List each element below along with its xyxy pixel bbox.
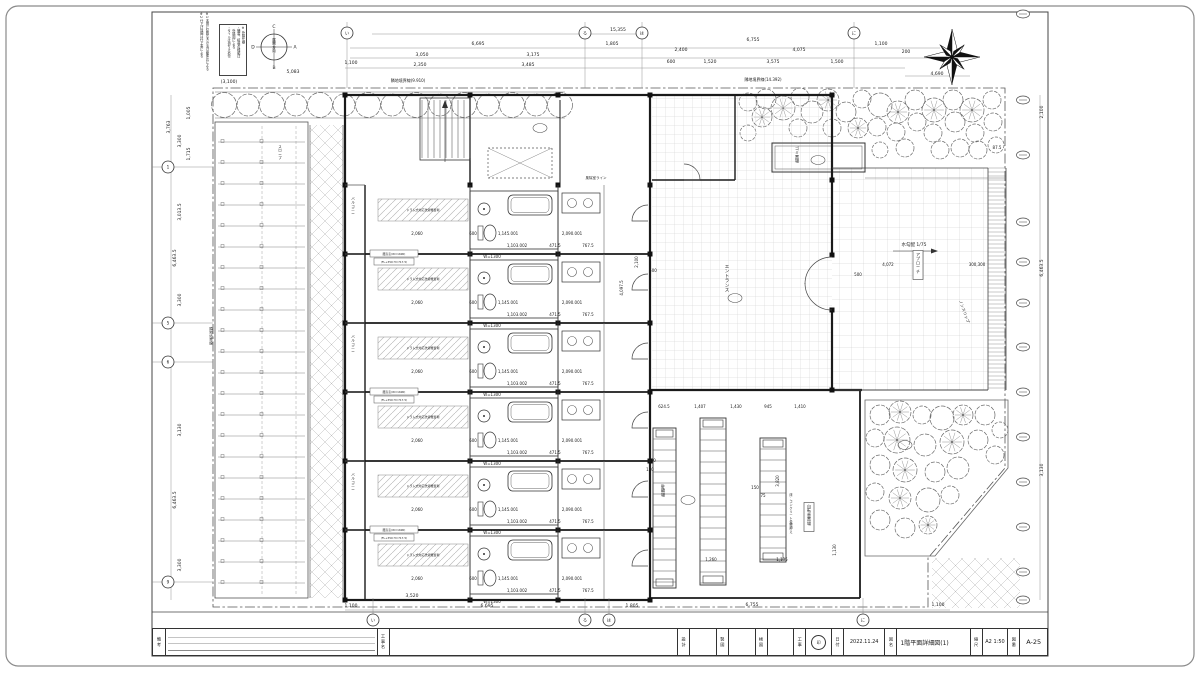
tree-center-dot (927, 524, 929, 526)
toilet-tank (478, 433, 483, 447)
burner (568, 199, 577, 208)
tree-icon (951, 139, 969, 157)
unit-dim-label: 471.5 (549, 243, 561, 248)
tree-center-dot (899, 411, 901, 413)
dim-label: 3,300 (177, 293, 183, 306)
unit-entry-door-arc (632, 274, 648, 290)
tree-icon (872, 142, 888, 158)
tree-icon (925, 462, 945, 482)
unit-dim-label: 2,060 (411, 369, 423, 374)
dwg-line (897, 470, 905, 476)
tree-icon (975, 405, 995, 425)
dim-label: 3,300 (177, 134, 183, 147)
dim-label: 3,300 (177, 558, 183, 571)
unit-dim-label: 767.5 (582, 243, 594, 248)
tree-icon (931, 141, 949, 159)
corner-paving (932, 558, 1020, 608)
unit-dim-label: 1,103.002 (507, 588, 528, 593)
toilet (484, 501, 496, 517)
dim-label: 2,400 (675, 47, 688, 53)
entrance-tile-floor (652, 95, 832, 390)
tree-icon (870, 510, 890, 530)
site-label: バルコニー (351, 197, 355, 216)
bathtub-inner (511, 267, 549, 282)
washbasin-drain (483, 553, 485, 555)
dwg-line (949, 433, 952, 442)
tree-icon (404, 93, 429, 118)
dim-label: 6,463.5 (172, 249, 178, 266)
unit-dim-label: 600 (469, 231, 477, 236)
bath-module (470, 191, 558, 249)
site-label: エントランス (725, 264, 730, 294)
parking-strip (215, 122, 308, 598)
dwg-line (897, 430, 900, 440)
dim-label: 624.5 (658, 404, 670, 409)
unit-dim-label: 2,090.001 (562, 576, 583, 581)
washbasin-drain (483, 484, 485, 486)
dim-label: 1,715 (186, 147, 192, 160)
site-label: スロープ (278, 144, 282, 160)
tree-center-dot (896, 439, 898, 441)
stair-direction-arrow (442, 100, 448, 108)
dwg-line (897, 403, 900, 412)
tree-icon (868, 118, 886, 136)
burner (568, 268, 577, 277)
washbasin-drain (483, 277, 485, 279)
dim-label: (3,100) (221, 79, 238, 85)
dwg-line (900, 498, 903, 507)
tree-icon (870, 455, 890, 475)
design-value (689, 629, 716, 655)
draft-label: 製図 (716, 629, 728, 655)
bathtub-inner (511, 405, 549, 420)
bathtub-inner (511, 543, 549, 558)
site-label: 自転車置場 (807, 503, 811, 526)
tree-icon (983, 91, 1001, 109)
unit-dim-label: 600 (469, 369, 477, 374)
toilet-tank (478, 571, 483, 585)
dwg-line (900, 412, 903, 421)
dim-label: 1,135 (776, 557, 788, 562)
bike-rack (760, 438, 786, 562)
date-value: 2022.11.24 (843, 629, 885, 655)
unit-dim-label: 1,103.002 (507, 519, 528, 524)
dwg-line (949, 442, 952, 451)
tree-center-dot (904, 469, 906, 471)
tree-icon (947, 457, 969, 479)
site-label: バルコニー (351, 335, 355, 354)
dwg-line (956, 415, 963, 420)
sheet-no-value: A-25 (1019, 629, 1047, 655)
bathtub (508, 195, 552, 215)
tree-icon (916, 488, 940, 512)
direction-key-bottom: B (272, 65, 275, 71)
unit-dim-label: 767.5 (582, 519, 594, 524)
laundry-label: ドラム式対応洗濯機置場 (407, 414, 440, 419)
dwg-line (905, 464, 913, 470)
tree-icon (887, 123, 905, 141)
dim-label: 3,820 (775, 475, 780, 487)
dwg-line (900, 403, 903, 412)
rack-endcap (703, 576, 723, 583)
column-post (648, 598, 653, 603)
site-label: 駐輪場 (661, 483, 665, 497)
dwg-line (895, 112, 898, 121)
dim-label: 1,100 (345, 603, 358, 609)
unit-entry-door-arc (632, 412, 648, 428)
dim-label: 15,355 (610, 27, 626, 33)
bathtub-inner (511, 198, 549, 213)
dwg-line (952, 442, 955, 451)
dwg-line (960, 415, 963, 423)
dim-label: 150 (751, 485, 759, 490)
dim-label: 200 (902, 49, 911, 55)
washbasin-drain (483, 346, 485, 348)
dwg-line (902, 461, 905, 470)
bathtub (508, 333, 552, 353)
unit-dim-label: 2,090.001 (562, 369, 583, 374)
burner (568, 544, 577, 553)
dwg-line (902, 470, 905, 479)
tree-icon (836, 102, 856, 122)
burner (584, 337, 593, 346)
dwg-line (926, 104, 934, 110)
dim-label: 150 (646, 467, 654, 472)
dim-label: 3,013.5 (177, 203, 183, 220)
plan-tag (533, 124, 547, 133)
dim-label: 6,695 (472, 41, 485, 47)
dwg-line (893, 407, 900, 412)
dim-label: 1,520 (704, 59, 717, 65)
toilet (484, 225, 496, 241)
unit-dim-label: 1,103.002 (507, 312, 528, 317)
dwg-line (898, 103, 901, 112)
tree-icon (943, 90, 963, 110)
dim-label: 3,130 (1039, 463, 1045, 476)
dwg-line (905, 461, 908, 470)
tree-center-dot (857, 127, 859, 129)
dim-label: 1,430 (730, 404, 742, 409)
dwg-line (900, 407, 907, 412)
dwg-line (952, 433, 955, 442)
dwg-line (855, 128, 858, 136)
tree-center-dot (962, 414, 964, 416)
sheet-no-label: 図番 (1007, 629, 1019, 655)
tree-icon (968, 430, 988, 450)
unit-dim-label: 600 (469, 438, 477, 443)
tree-icon (941, 486, 959, 504)
window-tag-label: (FL+350 H=717.5) (381, 536, 407, 540)
remarks-lines (168, 631, 375, 653)
toilet (484, 294, 496, 310)
work-stamp-cell: 印 (805, 629, 831, 655)
grid-bubble-label: 1 (167, 165, 170, 170)
floor-plan-canvas: ドラム式対応洗濯機置場2,0606001,145.0012,090.0011,1… (0, 0, 1200, 673)
tree-center-dot (897, 111, 899, 113)
dim-label: 500 (649, 268, 657, 273)
unit-dim-label: 2,090.001 (562, 231, 583, 236)
bathtub (508, 402, 552, 422)
unit-dim-label: 471.5 (549, 588, 561, 593)
unit-entry-door-arc (632, 481, 648, 497)
tree-icon (896, 139, 914, 157)
margin-notes: ※1 本図に記載なき寸法は躯体芯による ※2 仕上げ詳細は仕上表による (193, 12, 209, 112)
site-label: アプローチ (916, 252, 920, 274)
dwg-line (858, 128, 865, 133)
tree-icon (525, 94, 547, 116)
dwg-line (931, 110, 934, 119)
project-name-label: 工事名 (377, 629, 389, 655)
column-post (343, 598, 348, 603)
bathtub (508, 471, 552, 491)
bike-rack (653, 428, 676, 588)
window-tag-label: (FL+350 H=717.5) (381, 398, 407, 402)
site-label: 隣地境界線(14.392) (744, 76, 782, 82)
column-post (648, 93, 653, 98)
site-label: 床：コンクリート金鏝押え (789, 492, 793, 534)
dwg-line (972, 104, 980, 110)
rack-endcap (703, 420, 723, 427)
remarks-label: 備考 (153, 629, 165, 655)
dwg-line (894, 430, 897, 440)
unit-dim-label: 1,103.002 (507, 450, 528, 455)
dwg-line (893, 493, 900, 498)
unit-dim-label: 1,103.002 (507, 381, 528, 386)
laundry-label: ドラム式対応洗濯機置場 (407, 207, 440, 212)
column-post (556, 93, 561, 98)
dim-label: 1,805 (606, 41, 619, 47)
unit-dim-label: 1,145.001 (498, 231, 519, 236)
dim-label: 500 (854, 272, 862, 277)
draft-value (728, 629, 755, 655)
tree-icon (986, 446, 1004, 464)
walkway-tiles (310, 125, 343, 598)
dim-label: 3,763 (166, 120, 172, 133)
dwg-line (894, 440, 897, 450)
dwg-line (851, 128, 858, 133)
site-label: 風除室ライン (586, 175, 607, 180)
dim-label: 1,407 (694, 404, 706, 409)
dim-label: 1,130 (832, 544, 837, 556)
tree-center-dot (933, 109, 935, 111)
dwg-line (963, 407, 966, 415)
tree-icon (895, 518, 915, 538)
stamp-circle-icon: 印 (811, 635, 826, 650)
unit-dim-label: 1,145.001 (498, 369, 519, 374)
dwg-line (897, 464, 905, 470)
dim-label: 3,175 (527, 52, 540, 58)
direction-key-left: D (251, 45, 255, 51)
tree-icon (260, 93, 285, 118)
burner (568, 475, 577, 484)
site-label: バルコニー (351, 473, 355, 492)
direction-key-top: C (272, 24, 275, 30)
dim-label: 1,410 (794, 404, 806, 409)
grid-bubble-label: 6 (167, 360, 170, 365)
dwg-line (898, 107, 905, 112)
dim-label: 2,100 (634, 256, 639, 268)
column-post (830, 388, 835, 393)
dwg-line (926, 110, 934, 116)
unit-dim-label: 600 (469, 576, 477, 581)
unit-dim-label: 2,060 (411, 576, 423, 581)
column-post (830, 178, 835, 183)
dwg-line (893, 498, 900, 503)
unit-dim-label: 1,145.001 (498, 507, 519, 512)
direction-key-right: A (293, 45, 297, 51)
work-label: 工事 (793, 629, 805, 655)
washbasin-drain (483, 415, 485, 417)
burner (568, 406, 577, 415)
burner (584, 268, 593, 277)
dwg-line (888, 440, 897, 446)
dim-label: 6,755 (746, 602, 759, 608)
dwg-line (895, 103, 898, 112)
unit-dim-label: 471.5 (549, 381, 561, 386)
column-post (648, 183, 653, 188)
dwg-line (900, 489, 903, 498)
unit-dim-label: 2,060 (411, 231, 423, 236)
dwg-line (900, 493, 907, 498)
tree-icon (381, 94, 403, 116)
dwg-line (858, 128, 861, 136)
rack-endcap (656, 579, 673, 586)
dwg-line (897, 434, 906, 440)
tree-icon (866, 483, 884, 501)
dwg-line (964, 110, 972, 116)
tree-icon (477, 94, 499, 116)
sheet-name-label: 図名 (884, 629, 896, 655)
bathtub-inner (511, 336, 549, 351)
window-tag-label: (FL+350 H=717.5) (381, 260, 407, 264)
tree-icon (966, 124, 984, 142)
toilet (484, 570, 496, 586)
dim-label: 600 (667, 59, 676, 65)
unit-dim-label: 471.5 (549, 312, 561, 317)
burner (584, 199, 593, 208)
dwg-line (858, 123, 865, 128)
grid-bubble-label: い (345, 31, 349, 36)
dwg-line (931, 101, 934, 110)
unit-dim-label: 1,145.001 (498, 576, 519, 581)
dim-label: 2,350 (414, 62, 427, 68)
dim-label: 4,690 (931, 71, 944, 77)
burner (584, 475, 593, 484)
tree-icon (212, 93, 237, 118)
dwg-line (952, 442, 960, 448)
window-tag-label: 腰高窓(W=1690) (383, 390, 406, 394)
dim-label: 3,050 (416, 52, 429, 58)
dwg-line (963, 410, 970, 415)
unit-dim-label: 2,060 (411, 507, 423, 512)
dwg-line (897, 489, 900, 498)
tree-icon (237, 94, 259, 116)
tree-icon (984, 113, 1002, 131)
dwg-line (898, 112, 905, 117)
unit-dim-label: 471.5 (549, 519, 561, 524)
column-post (343, 93, 348, 98)
plan-tag (898, 441, 912, 450)
design-label: 設計 (677, 629, 689, 655)
tree-icon (905, 90, 925, 110)
dim-label: 560 (648, 458, 656, 463)
dim-label: 3,575 (767, 59, 780, 65)
dwg-line (897, 412, 900, 421)
dwg-line (897, 498, 900, 507)
dim-label: 3,520 (406, 593, 419, 599)
dwg-line (972, 110, 975, 119)
dwg-line (956, 410, 963, 415)
burner (584, 544, 593, 553)
dwg-line (900, 412, 907, 417)
unit-dim-label: 2,090.001 (562, 507, 583, 512)
dim-label: 2,100 (1039, 105, 1045, 118)
dim-label: 1,500 (831, 59, 844, 65)
unit-dim-label: 1,145.001 (498, 300, 519, 305)
dwg-line (891, 107, 898, 112)
dwg-line (963, 415, 970, 420)
remarks-cell (165, 629, 377, 655)
date-label: 日付 (831, 629, 843, 655)
dwg-line (891, 112, 898, 117)
check-value (767, 629, 794, 655)
unit-dim-label: 2,090.001 (562, 300, 583, 305)
garden-border (865, 400, 1008, 556)
dwg-line (858, 120, 861, 128)
dwg-line (964, 104, 972, 110)
unit-entry-door-arc (632, 550, 648, 566)
tree-icon (285, 94, 307, 116)
dim-label: 1,260 (705, 557, 717, 562)
grid-bubble-label: い (371, 618, 375, 623)
tree-icon (914, 434, 936, 456)
unit-entry-door-arc (632, 205, 648, 221)
toilet-tank (478, 502, 483, 516)
site-label: 隣地境界線(9.910) (391, 77, 426, 83)
plan-tag (681, 496, 695, 505)
site-note-box: ※ 外構仕様 ・舗装、植栽の種類は 外構図による ・タイルは滑り止め付 (219, 24, 247, 76)
laundry-label: ドラム式対応洗濯機置場 (407, 276, 440, 281)
dwg-line (969, 110, 972, 119)
tree-center-dot (951, 441, 953, 443)
dim-label: 300,300 (969, 262, 986, 267)
unit-dim-label: 600 (469, 300, 477, 305)
tree-icon (868, 93, 892, 117)
laundry-label: ドラム式対応洗濯機置場 (407, 552, 440, 557)
column-post (830, 93, 835, 98)
sheet-name-value: 1階平面詳細図(1) (896, 629, 969, 655)
unit-dim-label: 767.5 (582, 381, 594, 386)
unit-dim-label: 767.5 (582, 588, 594, 593)
toilet-tank (478, 295, 483, 309)
toilet (484, 432, 496, 448)
dim-label: 4,075 (793, 47, 806, 53)
title-block: 備考 工事名 設計 製図 検図 工事 印 日付 2022.11.24 図名 1階… (152, 628, 1048, 656)
site-label: 水勾配 1/75 (901, 241, 926, 248)
dwg-line (934, 110, 937, 119)
dwg-line (969, 101, 972, 110)
dwg-line (897, 440, 900, 450)
dwg-line (893, 412, 900, 417)
dwg-line (851, 123, 858, 128)
dwg-line (934, 110, 942, 116)
tree-icon (866, 429, 884, 447)
bathtub-inner (511, 474, 549, 489)
dim-label: 6,463.5 (1039, 259, 1045, 276)
window-tag-label: 腰高窓(W=1690) (383, 528, 406, 532)
rack-endcap (763, 440, 783, 447)
dwg-line (944, 442, 952, 448)
